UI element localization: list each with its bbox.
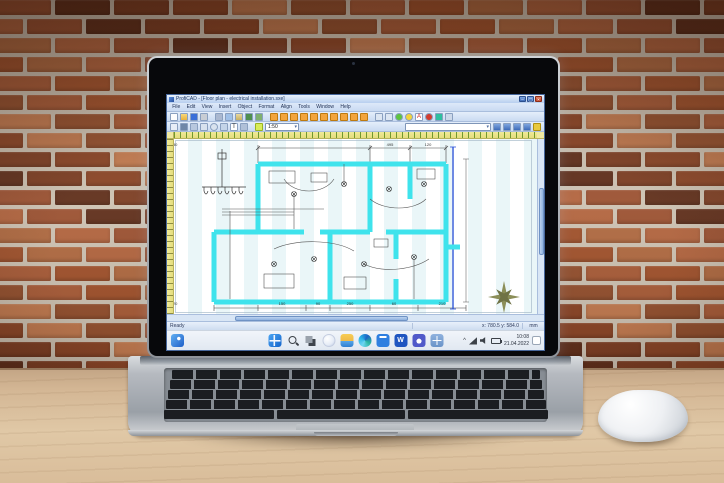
wire-tool-icon[interactable]	[180, 123, 188, 131]
brick	[704, 342, 724, 357]
brick	[55, 304, 110, 319]
menu-item[interactable]: File	[169, 104, 183, 110]
cad-application-window: ProfiCAD - [Floor plan - electrical inst…	[166, 94, 545, 351]
brick	[0, 0, 51, 15]
brick	[86, 247, 141, 262]
brick	[27, 361, 82, 368]
brick	[440, 19, 495, 34]
chevron-up-icon[interactable]: ^	[463, 337, 466, 345]
brick	[86, 19, 141, 34]
brick	[676, 361, 724, 368]
brick	[645, 114, 700, 129]
brick	[86, 285, 141, 300]
brick	[617, 247, 672, 262]
search-icon[interactable]	[286, 334, 299, 347]
brick	[645, 76, 700, 91]
symbol-search-combobox[interactable]	[405, 123, 491, 131]
app-window-icon[interactable]	[430, 334, 443, 347]
brick	[617, 95, 672, 110]
toolbar2-icons: T	[170, 123, 263, 131]
brick	[558, 133, 613, 148]
taskbar-clock[interactable]: 10:08 21.04.2022	[504, 334, 529, 347]
brick	[645, 152, 700, 167]
horizontal-scroll-thumb[interactable]	[235, 316, 408, 321]
vertical-ruler	[167, 139, 174, 314]
brick	[27, 247, 82, 262]
conductor-button[interactable]	[270, 113, 278, 121]
brick	[558, 95, 613, 110]
brick	[232, 0, 287, 15]
laptop-screen: ProfiCAD - [Floor plan - electrical inst…	[147, 56, 560, 358]
brick	[558, 57, 613, 72]
spacebar	[277, 410, 405, 419]
arc-tool-icon[interactable]	[220, 123, 228, 131]
right-dimension	[463, 159, 469, 302]
brick	[676, 247, 724, 262]
brick	[27, 133, 82, 148]
brick	[55, 228, 110, 243]
conductor-button[interactable]	[330, 113, 338, 121]
main-area: 495120330 1509025060210120	[167, 139, 544, 314]
page-nav-buttons	[493, 123, 541, 131]
floor-plan-drawing	[174, 139, 537, 314]
brick	[0, 228, 51, 243]
toolbar-row-2: T 1:50	[167, 122, 544, 132]
brick	[55, 152, 110, 167]
brick	[27, 323, 82, 338]
layer-icon[interactable]	[435, 113, 443, 121]
brick	[617, 19, 672, 34]
conductor-button[interactable]	[310, 113, 318, 121]
ceiling-lamps	[272, 182, 427, 267]
horizontal-ruler	[174, 132, 537, 139]
text-tool-icon[interactable]: T	[230, 123, 238, 131]
keyboard-bottom-row	[164, 410, 548, 419]
brick	[0, 342, 51, 357]
brick	[558, 19, 613, 34]
brick	[0, 95, 23, 110]
grid-toggle-button[interactable]	[255, 123, 263, 131]
menu-item[interactable]: Window	[313, 104, 337, 110]
brick	[0, 76, 51, 91]
brick	[27, 209, 82, 224]
next-page-button[interactable]	[513, 123, 521, 131]
clock-date: 21.04.2022	[504, 341, 529, 347]
brick	[617, 361, 672, 368]
statusbar: Ready x: 780.5 y: 584.0 mm	[167, 321, 544, 330]
brick	[645, 266, 700, 281]
brick	[586, 190, 641, 205]
brick	[468, 0, 523, 15]
cursor-coordinates: x: 780.5 y: 584.0	[412, 323, 522, 329]
brick	[55, 76, 110, 91]
circle-tool-icon[interactable]	[210, 123, 218, 131]
teams-icon[interactable]	[412, 334, 425, 347]
brick	[558, 171, 613, 186]
task-view-icon[interactable]	[304, 334, 317, 347]
brick	[173, 0, 228, 15]
brick	[645, 304, 700, 319]
tray-glyphs: ^	[463, 337, 501, 345]
brick	[704, 0, 724, 15]
brick	[586, 342, 641, 357]
brick	[558, 247, 613, 262]
zoom-in-icon[interactable]	[375, 113, 383, 121]
new-icon[interactable]	[170, 113, 178, 121]
keyboard-row	[166, 400, 546, 409]
maximize-button[interactable]: ▢	[527, 96, 534, 102]
separator[interactable]	[250, 123, 253, 131]
windows-taskbar: W ^ 10:08 21.04.2022	[167, 330, 544, 350]
brick	[0, 266, 51, 281]
brick	[114, 38, 169, 53]
network-icon[interactable]	[469, 337, 477, 345]
brick	[499, 19, 554, 34]
menu-item[interactable]: Insert	[216, 104, 235, 110]
brick	[676, 171, 724, 186]
brick	[676, 95, 724, 110]
brick	[86, 133, 141, 148]
last-page-button[interactable]	[523, 123, 531, 131]
brick	[676, 19, 724, 34]
record-icon[interactable]	[425, 113, 433, 121]
text-color-icon[interactable]: A	[415, 113, 423, 121]
brick	[27, 95, 82, 110]
brick	[0, 19, 23, 34]
brick	[645, 228, 700, 243]
brick	[704, 190, 724, 205]
brick	[55, 342, 110, 357]
brick	[527, 0, 582, 15]
menubar: FileEditViewInsertObjectFormatAlignTools…	[167, 103, 544, 112]
brick	[55, 190, 110, 205]
horizontal-scrollbar[interactable]	[167, 314, 544, 321]
brick	[86, 95, 141, 110]
taskbar-center: W	[268, 334, 443, 347]
grid-icon[interactable]	[445, 113, 453, 121]
menu-item[interactable]: View	[198, 104, 215, 110]
cut-icon[interactable]	[215, 113, 223, 121]
laptop-base	[128, 356, 583, 436]
widgets-icon[interactable]	[171, 334, 184, 347]
line-tool-icon[interactable]	[190, 123, 198, 131]
brick	[468, 38, 523, 53]
brick	[0, 190, 51, 205]
taskbar-left	[171, 334, 184, 347]
top-dimension-chain	[256, 145, 448, 163]
brick	[291, 0, 346, 15]
brick	[0, 323, 23, 338]
vertical-scroll-thumb[interactable]	[539, 188, 544, 255]
copy-icon[interactable]	[225, 113, 233, 121]
brick	[350, 0, 405, 15]
battery-icon[interactable]	[491, 338, 501, 344]
brick	[704, 38, 724, 53]
brick	[291, 38, 346, 53]
brick	[55, 0, 110, 15]
brick	[381, 19, 436, 34]
brick	[0, 133, 23, 148]
edge-icon[interactable]	[358, 334, 371, 347]
ruler-corner	[167, 132, 174, 139]
brick	[263, 19, 318, 34]
brick	[558, 323, 613, 338]
window-title: ProfiCAD - [Floor plan - electrical inst…	[176, 96, 517, 102]
brick	[617, 171, 672, 186]
brick	[27, 57, 82, 72]
brick	[350, 38, 405, 53]
brick	[645, 0, 700, 15]
bookmark-icon[interactable]	[533, 123, 541, 131]
store-icon[interactable]	[376, 334, 389, 347]
status-text: Ready	[167, 323, 412, 329]
brick	[704, 76, 724, 91]
zoom-out-icon[interactable]	[385, 113, 393, 121]
distribution-board	[202, 149, 246, 194]
separator[interactable]	[210, 113, 213, 121]
brick	[86, 57, 141, 72]
conductor-button[interactable]	[290, 113, 298, 121]
brick	[0, 247, 23, 262]
brick	[0, 171, 23, 186]
system-tray: ^ 10:08 21.04.2022	[463, 331, 541, 350]
brick	[27, 19, 82, 34]
vertical-scrollbar[interactable]	[537, 139, 544, 314]
file-explorer-icon[interactable]	[340, 334, 353, 347]
marker-green-icon[interactable]	[395, 113, 403, 121]
brick	[27, 171, 82, 186]
bottom-dimension-chain	[214, 305, 466, 311]
brick	[145, 19, 200, 34]
brick	[86, 323, 141, 338]
brick	[232, 38, 287, 53]
brick	[322, 19, 377, 34]
brick	[0, 285, 23, 300]
ruler-cap	[537, 132, 544, 139]
brick	[55, 114, 110, 129]
brick	[617, 209, 672, 224]
close-button[interactable]: ×	[535, 96, 542, 102]
brick	[586, 304, 641, 319]
drawing-canvas[interactable]: 495120330 1509025060210120	[174, 139, 537, 314]
brick	[704, 266, 724, 281]
window-controls: –▢×	[519, 96, 542, 102]
word-icon[interactable]: W	[394, 334, 407, 347]
screen-bezel: ProfiCAD - [Floor plan - electrical inst…	[149, 58, 558, 356]
conductor-button[interactable]	[350, 113, 358, 121]
lid-opening-notch	[314, 432, 398, 436]
brick	[409, 0, 464, 15]
brick	[645, 38, 700, 53]
conductor-button[interactable]	[360, 113, 368, 121]
menu-item[interactable]: Format	[255, 104, 277, 110]
brick	[586, 152, 641, 167]
brick	[704, 114, 724, 129]
brick	[55, 38, 110, 53]
pointer-icon[interactable]	[170, 123, 178, 131]
arrow-keys	[408, 410, 548, 419]
separator[interactable]	[265, 113, 268, 121]
open-icon[interactable]	[180, 113, 188, 121]
brick	[617, 133, 672, 148]
brick	[676, 209, 724, 224]
brick	[558, 209, 613, 224]
brick	[558, 285, 613, 300]
brick	[586, 266, 641, 281]
copilot-icon[interactable]	[322, 334, 335, 347]
notification-icon[interactable]	[532, 336, 541, 345]
menu-item[interactable]: Tools	[295, 104, 313, 110]
separator[interactable]	[370, 113, 373, 121]
keyboard-row	[170, 380, 542, 389]
conductor-button[interactable]	[320, 113, 328, 121]
compass-rose	[488, 281, 520, 313]
brick	[704, 228, 724, 243]
volume-icon[interactable]	[480, 337, 488, 345]
previous-page-button[interactable]	[503, 123, 511, 131]
brick	[676, 133, 724, 148]
brick	[617, 323, 672, 338]
menu-item[interactable]: Align	[278, 104, 296, 110]
brick	[645, 190, 700, 205]
brick	[114, 0, 169, 15]
horizontal-ruler-row	[167, 132, 544, 139]
save-icon[interactable]	[190, 113, 198, 121]
paste-icon[interactable]	[235, 113, 243, 121]
keyboard	[164, 368, 547, 422]
undo-icon[interactable]	[245, 113, 253, 121]
rect-tool-icon[interactable]	[200, 123, 208, 131]
brick	[409, 38, 464, 53]
brick	[86, 209, 141, 224]
brick	[617, 57, 672, 72]
brick	[86, 171, 141, 186]
conductor-button[interactable]	[340, 113, 348, 121]
keyboard-row	[172, 370, 540, 379]
brick	[586, 114, 641, 129]
scene: ProfiCAD - [Floor plan - electrical inst…	[0, 0, 724, 483]
app-icon	[169, 97, 174, 102]
webcam-dot	[352, 62, 355, 65]
marker-yellow-icon[interactable]	[405, 113, 413, 121]
scale-combobox[interactable]: 1:50	[265, 123, 299, 131]
conductor-button[interactable]	[300, 113, 308, 121]
brick	[0, 209, 23, 224]
brick	[527, 38, 582, 53]
menu-item[interactable]: Object	[234, 104, 255, 110]
computer-mouse	[598, 390, 688, 442]
brick	[0, 57, 23, 72]
brick	[586, 38, 641, 53]
brick	[27, 285, 82, 300]
brick	[55, 266, 110, 281]
brick	[0, 38, 51, 53]
brick	[704, 152, 724, 167]
brick	[0, 304, 51, 319]
titlebar: ProfiCAD - [Floor plan - electrical inst…	[167, 95, 544, 103]
brick	[676, 323, 724, 338]
right-dimension-selected	[450, 147, 456, 309]
brick	[586, 76, 641, 91]
start-icon[interactable]	[268, 334, 281, 347]
brick	[676, 285, 724, 300]
minimize-button[interactable]: –	[519, 96, 526, 102]
brick	[173, 38, 228, 53]
toolbar-row-1: A	[167, 112, 544, 122]
brick	[676, 57, 724, 72]
redo-icon[interactable]	[255, 113, 263, 121]
dimension-tool-icon[interactable]	[240, 123, 248, 131]
brick	[586, 228, 641, 243]
units-indicator: mm	[522, 323, 544, 329]
brick	[617, 285, 672, 300]
brick	[0, 114, 51, 129]
toolbar1-icons: A	[170, 113, 453, 121]
brick	[204, 19, 259, 34]
print-icon[interactable]	[200, 113, 208, 121]
brick	[586, 0, 641, 15]
menu-item[interactable]: Help	[337, 104, 354, 110]
modifier-keys	[164, 410, 274, 419]
brick	[0, 361, 23, 368]
brick	[0, 152, 51, 167]
brick	[645, 342, 700, 357]
first-page-button[interactable]	[493, 123, 501, 131]
brick	[704, 304, 724, 319]
conductor-button[interactable]	[280, 113, 288, 121]
menu-item[interactable]: Edit	[183, 104, 198, 110]
keyboard-row	[168, 390, 544, 399]
